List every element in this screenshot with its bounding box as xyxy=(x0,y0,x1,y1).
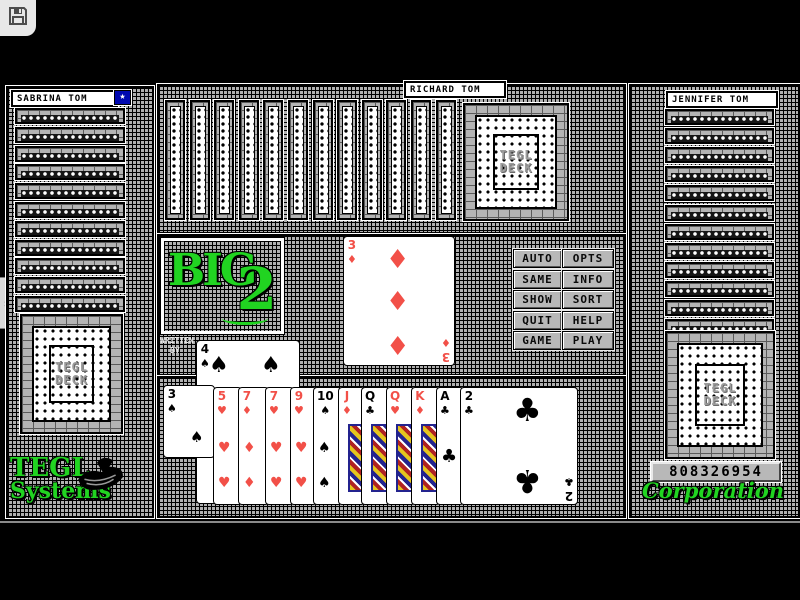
big2-logo: BIG 2 xyxy=(161,238,284,334)
card-3-diamond: 3♦3♦♦♦♦ xyxy=(343,236,455,366)
diamond-pip-icon: ♦ xyxy=(386,289,409,315)
deck-label-text: DECK xyxy=(55,374,88,387)
card-index: 3♦ xyxy=(441,336,451,364)
turn-star-button[interactable]: ★ xyxy=(114,90,131,105)
deck-pattern: TEGLDECK xyxy=(32,326,111,422)
menu-button-help[interactable]: HELP xyxy=(562,311,614,330)
menu-button-game[interactable]: GAME xyxy=(513,331,562,350)
game-screen: › SABRINA TOM ★ RICHARD TOM JENNIFER TOM… xyxy=(0,0,800,600)
card-back xyxy=(665,166,774,182)
spade-pip-icon: ♠ xyxy=(190,430,203,445)
menu-button-quit[interactable]: QUIT xyxy=(513,311,562,330)
card-back xyxy=(665,281,774,297)
card-back xyxy=(15,146,125,162)
deck-label: TEGLDECK xyxy=(695,364,744,426)
player-name-left: SABRINA TOM xyxy=(11,90,118,107)
card-back xyxy=(190,100,210,220)
card-back xyxy=(15,164,125,180)
card-index: 10♠ xyxy=(317,389,334,417)
card-back xyxy=(15,202,125,218)
player-name-right: JENNIFER TOM xyxy=(666,91,778,108)
diamond-pip-icon: ♦ xyxy=(386,331,409,357)
diamond-pip-icon: ♦ xyxy=(243,476,256,490)
card-index: 5♥ xyxy=(217,389,227,417)
floppy-disk-icon xyxy=(6,4,30,32)
card-index: Q♥ xyxy=(390,389,400,417)
card-back xyxy=(665,262,774,278)
card-index: 2♣ xyxy=(464,389,474,417)
spade-pip-icon: ♠ xyxy=(318,441,331,455)
card-back xyxy=(288,100,308,220)
card-index: A♣ xyxy=(440,389,450,417)
deck-card-back: TEGLDECK xyxy=(20,314,123,434)
card-back xyxy=(214,100,234,220)
swan-logo-icon xyxy=(72,452,126,498)
card-back xyxy=(665,224,774,240)
menu-button-auto[interactable]: AUTO xyxy=(513,249,562,268)
card-3-spade[interactable]: 3♠♠ xyxy=(163,385,215,458)
card-index: 3♠ xyxy=(167,387,177,415)
player-name-top: RICHARD TOM xyxy=(404,81,506,98)
deck-label-text: DECK xyxy=(500,162,533,175)
card-back xyxy=(15,221,125,237)
card-back xyxy=(263,100,283,220)
card-index: 7♦ xyxy=(242,389,252,417)
card-index: J♦ xyxy=(342,389,352,417)
deck-pattern: TEGLDECK xyxy=(677,343,763,447)
card-index: 7♥ xyxy=(269,389,279,417)
card-back xyxy=(15,183,125,199)
club-pip-icon: ♣ xyxy=(513,394,542,426)
spade-pip-icon: ♠ xyxy=(209,355,229,377)
card-back xyxy=(15,277,125,293)
deck-card-back: TEGLDECK xyxy=(665,331,775,459)
card-back xyxy=(665,243,774,259)
deck-pattern: TEGLDECK xyxy=(475,115,557,209)
card-back xyxy=(411,100,431,220)
credit-text: WRITTEN BY xyxy=(160,336,196,358)
card-back xyxy=(665,205,774,221)
heart-pip-icon: ♥ xyxy=(218,441,231,455)
card-back xyxy=(15,108,125,124)
heart-pip-icon: ♥ xyxy=(295,476,308,490)
card-index: 2♣ xyxy=(564,475,574,503)
menu-button-info[interactable]: INFO xyxy=(562,270,614,289)
save-button[interactable] xyxy=(0,0,36,36)
card-back xyxy=(386,100,406,220)
diamond-pip-icon: ♦ xyxy=(386,247,409,273)
spade-pip-icon: ♠ xyxy=(318,476,331,490)
branding-corporation: Corporation xyxy=(638,478,788,503)
card-back xyxy=(165,100,185,220)
card-back xyxy=(665,109,774,125)
deck-label: TEGLDECK xyxy=(49,345,94,402)
card-back xyxy=(15,296,125,312)
card-back xyxy=(665,185,774,201)
card-index: K♦ xyxy=(415,389,425,417)
spade-pip-icon: ♠ xyxy=(261,355,281,377)
card-back xyxy=(362,100,382,220)
card-index: Q♣ xyxy=(365,389,375,417)
heart-pip-icon: ♥ xyxy=(295,441,308,455)
deck-label: TEGLDECK xyxy=(493,134,540,190)
card-back xyxy=(337,100,357,220)
card-back xyxy=(15,240,125,256)
card-back xyxy=(436,100,456,220)
logo-swirl xyxy=(222,312,268,325)
screen-divider-line xyxy=(0,521,800,523)
club-pip-icon: ♣ xyxy=(513,465,542,497)
card-index: 9♥ xyxy=(294,389,304,417)
deck-label-text: DECK xyxy=(704,395,737,408)
card-back xyxy=(239,100,259,220)
card-back xyxy=(665,128,774,144)
card-back xyxy=(665,147,774,163)
card-back xyxy=(313,100,333,220)
card-index: 3♦ xyxy=(347,238,357,266)
menu-button-opts[interactable]: OPTS xyxy=(562,249,614,268)
card-2-club[interactable]: 2♣2♣♣♣ xyxy=(460,387,578,505)
heart-pip-icon: ♥ xyxy=(218,476,231,490)
deck-card-back: TEGLDECK xyxy=(463,103,569,221)
menu-button-same[interactable]: SAME xyxy=(513,270,562,289)
heart-pip-icon: ♥ xyxy=(270,476,283,490)
menu-button-show[interactable]: SHOW xyxy=(513,290,562,309)
heart-pip-icon: ♥ xyxy=(270,441,283,455)
menu-button-play[interactable]: PLAY xyxy=(562,331,614,350)
card-back xyxy=(15,258,125,274)
club-pip-icon: ♣ xyxy=(441,448,457,466)
card-back xyxy=(665,300,774,316)
card-back xyxy=(15,127,125,143)
menu-button-sort[interactable]: SORT xyxy=(562,290,614,309)
diamond-pip-icon: ♦ xyxy=(243,441,256,455)
